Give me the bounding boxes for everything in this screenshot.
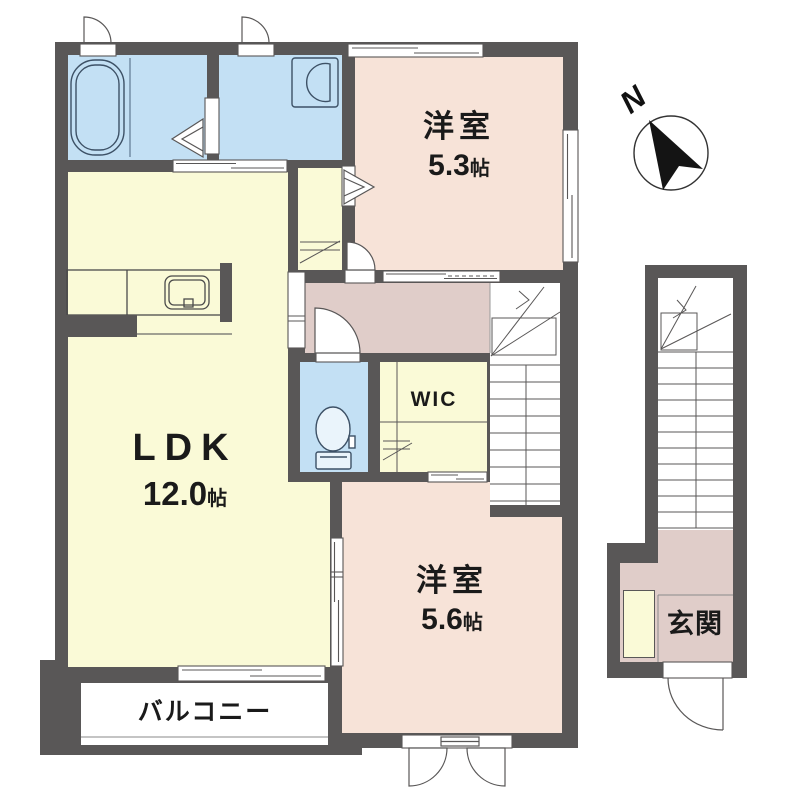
entrance-door-arc (668, 678, 723, 730)
room-washroom (219, 55, 342, 160)
hallway (305, 283, 490, 353)
bedroom56-size: 5.6帖 (352, 601, 552, 639)
compass-north-label: N (613, 79, 653, 121)
entrance-label: 玄関 (656, 608, 734, 642)
bedroom56-name: 洋室 (352, 562, 552, 601)
balcony-label: バルコニー (90, 697, 320, 728)
bath-window-swing (84, 17, 111, 43)
floor-plan: LDK 12.0帖 洋室 5.3帖 洋室 5.6帖 WIC バルコニー 玄関 N (0, 0, 800, 800)
bedroom53-name: 洋室 (364, 108, 554, 147)
room-toilet (300, 362, 368, 472)
ldk-size: 12.0帖 (75, 473, 295, 514)
room-ldk (68, 172, 288, 667)
shoe-closet (623, 590, 655, 658)
bedroom53-size: 5.3帖 (364, 147, 554, 185)
wic-label: WIC (395, 387, 473, 413)
ldk-name: LDK (75, 425, 295, 473)
ldk-label: LDK 12.0帖 (75, 425, 295, 514)
bedroom56-door-left-arc (409, 748, 447, 786)
bedroom56-label: 洋室 5.6帖 (352, 562, 552, 638)
washroom-window-swing (242, 17, 269, 43)
stairwell-entrance (658, 278, 733, 530)
room-bathroom (68, 55, 207, 160)
bedroom56-door-right-arc (467, 748, 505, 786)
north-arrow-icon (634, 116, 708, 190)
closet-bedroom-53 (298, 168, 342, 270)
stairwell-main (490, 283, 560, 505)
entrance-hall-upper (658, 530, 733, 563)
bedroom53-label: 洋室 5.3帖 (364, 108, 554, 184)
room-wic (380, 362, 487, 472)
